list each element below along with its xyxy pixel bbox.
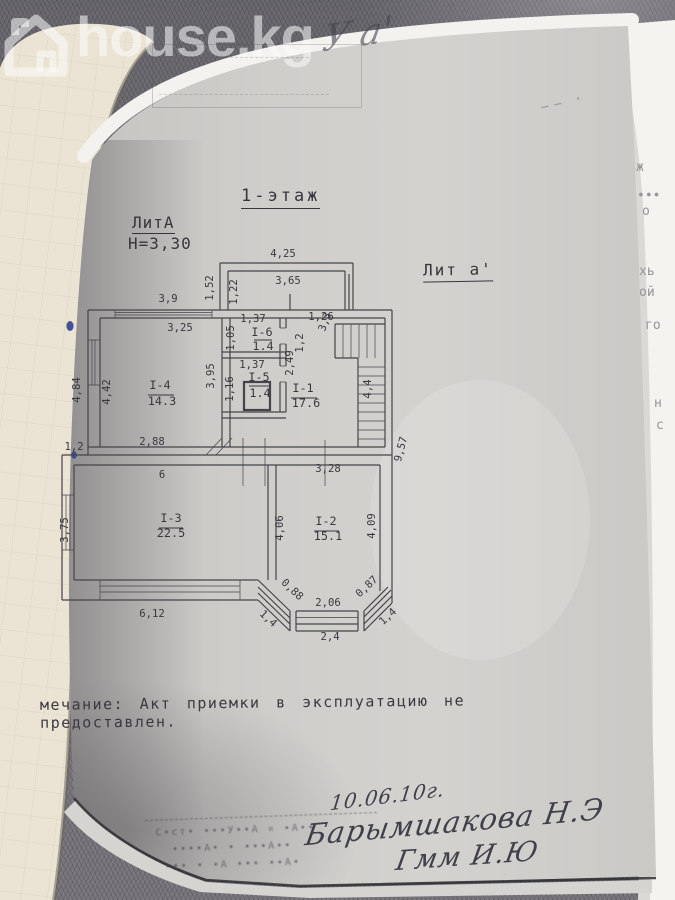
annex-letter-label: Лит а' — [423, 259, 493, 282]
plan-dimension-label: 0,88 — [279, 577, 306, 603]
plan-dimension-label: 4,42 — [101, 379, 113, 405]
house-icon — [1, 10, 71, 78]
room-label: 1.4 — [249, 386, 270, 400]
room-label: I-3 — [160, 511, 181, 525]
plan-dimension-label: 1,2 — [64, 441, 83, 453]
floor-plan: 4,253,651,521,223,93,254,844,423,951,371… — [40, 240, 430, 660]
plan-dimension-label: 2,06 — [315, 597, 341, 609]
plan-dimension-label: 2,88 — [139, 436, 165, 448]
room-label: 14.3 — [148, 394, 176, 408]
room-label: 15.1 — [314, 529, 342, 543]
plan-dimension-label: 3,75 — [59, 517, 71, 543]
page-edge-letter-fragment: ой — [639, 285, 655, 300]
page-edge-letter-fragment: ∙∙∙ — [637, 188, 660, 203]
room-label: I-5 — [248, 370, 269, 384]
plan-dimension-label: 3,28 — [315, 463, 341, 475]
room-label: I-1 — [292, 381, 313, 395]
page-edge-letter-fragment: хь — [639, 264, 655, 279]
plan-dimension-label: 9,57 — [392, 435, 410, 463]
plan-dimension-label: 4,25 — [270, 248, 296, 260]
plan-dimension-label: 1,4 — [257, 608, 279, 630]
floor-plan-walls — [62, 263, 392, 631]
plan-dimension-label: 1,05 — [225, 325, 237, 351]
room-label: 22.5 — [157, 526, 185, 540]
plan-dimension-label: 1,2 — [294, 333, 306, 352]
plan-dimension-label: 6,12 — [139, 608, 165, 620]
page-edge-letter-fragment: го — [645, 318, 661, 333]
photo-of-floorplan-document: house.kg У а' –– · 1-этаж ЛитА Н=3,30 Ли… — [0, 0, 675, 900]
plan-dimension-label: 2,49 — [284, 350, 296, 376]
plan-dimension-label: 4,09 — [366, 513, 378, 539]
room-label: I-6 — [251, 325, 272, 339]
floor-title: 1-этаж — [241, 186, 320, 209]
plan-dimension-label: 1,37 — [240, 313, 266, 325]
plan-dimension-label: 1,52 — [204, 275, 216, 301]
page-edge-letter-fragment: ж — [636, 160, 644, 175]
plan-dimension-label: 1,4 — [377, 606, 399, 628]
plan-dimension-label: 4,4 — [362, 379, 374, 398]
plan-dimension-label: 2,4 — [320, 631, 339, 643]
plan-dimension-label: 4,06 — [274, 515, 286, 541]
room-label: 1.4 — [252, 339, 273, 353]
plan-dimension-label: 1,22 — [228, 279, 240, 305]
plan-dimension-label: 4,84 — [71, 377, 83, 403]
note-text: мечание: Акт приемки в эксплуатацию не п… — [40, 690, 600, 732]
room-label: I-2 — [315, 514, 336, 528]
plan-dimension-label: 6 — [159, 469, 165, 481]
plan-dimension-label: 3,65 — [275, 275, 301, 287]
page-edge-letter-fragment: с — [656, 418, 664, 433]
room-label: I-4 — [149, 378, 170, 392]
building-letter-label: ЛитА — [132, 213, 175, 234]
page-edge-letter-fragment: о — [642, 204, 650, 219]
plan-dimension-label: 3,95 — [205, 363, 217, 389]
plan-dimension-label: 3,25 — [167, 322, 193, 334]
plan-dimension-label: 1,16 — [224, 376, 236, 402]
page-edge-letter-fragment: н — [654, 396, 662, 411]
stamp-illegible-line: ∙∙∙ ∙ ∙А ∙∙∙ ∙∙А∙ — [164, 854, 378, 872]
plan-dimension-label: 0,87 — [354, 574, 381, 600]
plan-dimension-label: 3,9 — [158, 293, 177, 305]
room-label: 17.6 — [292, 396, 320, 410]
